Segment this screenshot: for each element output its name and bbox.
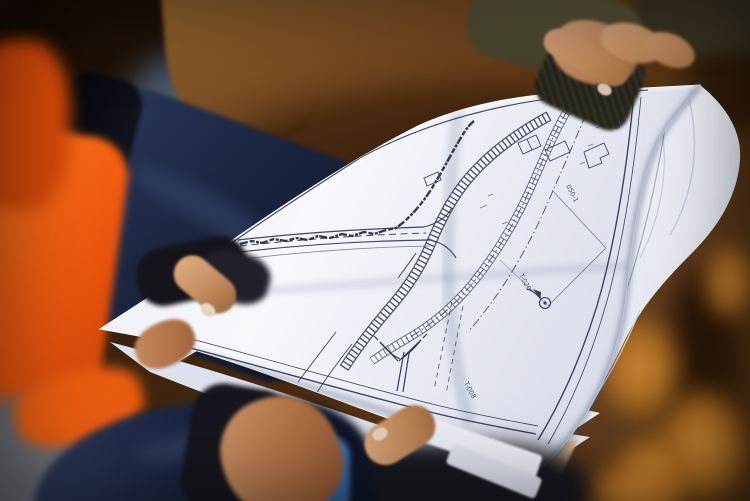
mark-on-paper — [607, 104, 610, 107]
photo-scene: T-02 050-1 T-020 T-008 — [0, 0, 750, 501]
